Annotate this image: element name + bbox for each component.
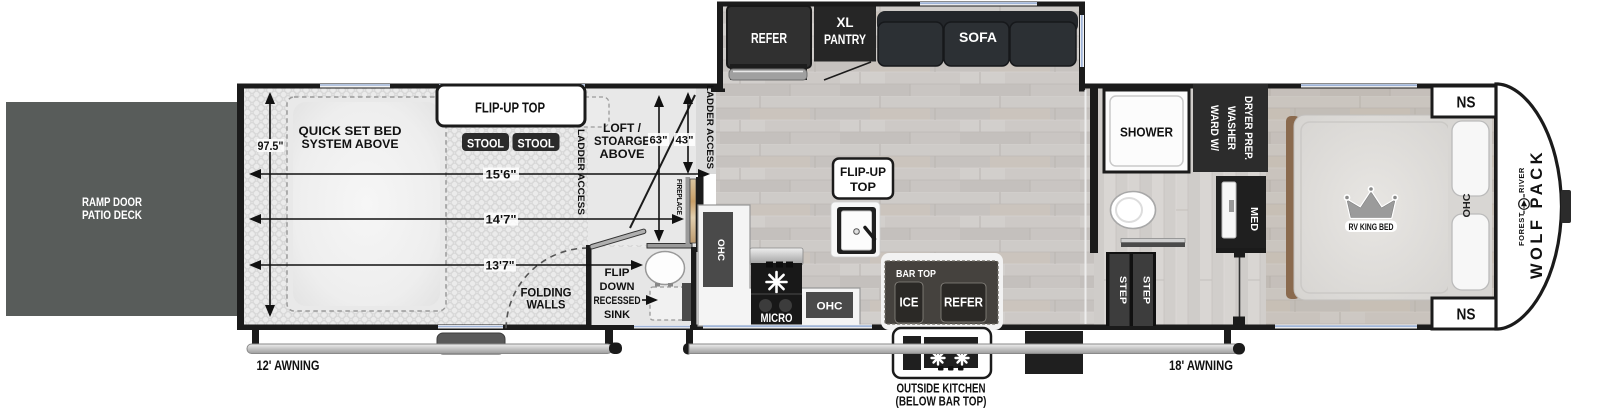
svg-text:STOOL: STOOL (467, 137, 504, 151)
svg-text:WARD W/: WARD W/ (1208, 105, 1220, 151)
svg-text:QUICK SET BED: QUICK SET BED (299, 124, 402, 138)
svg-text:SYSTEM ABOVE: SYSTEM ABOVE (302, 137, 399, 151)
svg-text:RIVER: RIVER (1517, 167, 1526, 193)
svg-text:18' AWNING: 18' AWNING (1169, 357, 1233, 373)
svg-text:(BELOW BAR TOP): (BELOW BAR TOP) (896, 394, 987, 409)
svg-text:FOLDING: FOLDING (521, 288, 572, 300)
svg-text:15'6": 15'6" (486, 170, 517, 182)
svg-text:FOREST: FOREST (1517, 212, 1526, 246)
svg-text:NS: NS (1457, 307, 1476, 324)
svg-text:WASHER: WASHER (1225, 106, 1237, 150)
svg-text:DRYER PREP.: DRYER PREP. (1242, 96, 1254, 160)
svg-text:MED: MED (1248, 207, 1259, 231)
svg-text:TOP: TOP (850, 182, 876, 194)
svg-text:43": 43" (676, 135, 694, 147)
svg-text:FLIP: FLIP (605, 267, 630, 279)
svg-text:OHC: OHC (817, 301, 843, 313)
svg-text:DOWN: DOWN (600, 281, 635, 293)
svg-text:STEP: STEP (1141, 276, 1152, 305)
svg-text:PATIO DECK: PATIO DECK (82, 208, 142, 222)
svg-text:13'7": 13'7" (486, 261, 515, 273)
svg-text:STOOL: STOOL (518, 137, 555, 151)
svg-text:XL: XL (837, 15, 854, 30)
svg-text:SINK: SINK (604, 309, 630, 321)
svg-text:OHC: OHC (715, 239, 726, 261)
svg-text:RV KING BED: RV KING BED (1349, 222, 1394, 232)
svg-text:BAR TOP: BAR TOP (896, 269, 936, 280)
svg-text:97.5": 97.5" (258, 141, 284, 153)
svg-text:ICE: ICE (900, 295, 919, 310)
svg-text:STEP: STEP (1117, 276, 1128, 305)
svg-text:RAMP DOOR: RAMP DOOR (82, 195, 142, 209)
svg-text:14'7": 14'7" (486, 215, 517, 227)
svg-text:LADDER ACCESS: LADDER ACCESS (704, 85, 715, 169)
svg-text:OHC: OHC (1462, 194, 1473, 218)
svg-text:63": 63" (650, 135, 668, 147)
svg-text:ABOVE: ABOVE (600, 147, 645, 161)
svg-text:NS: NS (1457, 95, 1476, 112)
svg-text:WOLF PACK: WOLF PACK (1528, 149, 1546, 279)
svg-text:FLIP-UP TOP: FLIP-UP TOP (475, 100, 545, 117)
svg-text:FIREPLACE: FIREPLACE (675, 179, 682, 215)
svg-text:SOFA: SOFA (959, 29, 997, 45)
svg-text:LADDER ACCESS: LADDER ACCESS (575, 129, 586, 215)
svg-text:FLIP-UP: FLIP-UP (840, 167, 886, 179)
svg-text:LOFT /: LOFT / (603, 121, 642, 135)
svg-text:MICRO: MICRO (761, 311, 793, 325)
svg-text:12' AWNING: 12' AWNING (257, 357, 320, 373)
svg-text:REFER: REFER (944, 295, 984, 310)
svg-text:WALLS: WALLS (527, 300, 566, 312)
svg-text:SHOWER: SHOWER (1120, 125, 1174, 140)
svg-text:RECESSED: RECESSED (594, 295, 641, 307)
svg-text:STOARGE: STOARGE (594, 134, 650, 148)
svg-text:PANTRY: PANTRY (824, 32, 866, 47)
svg-text:REFER: REFER (751, 30, 787, 47)
